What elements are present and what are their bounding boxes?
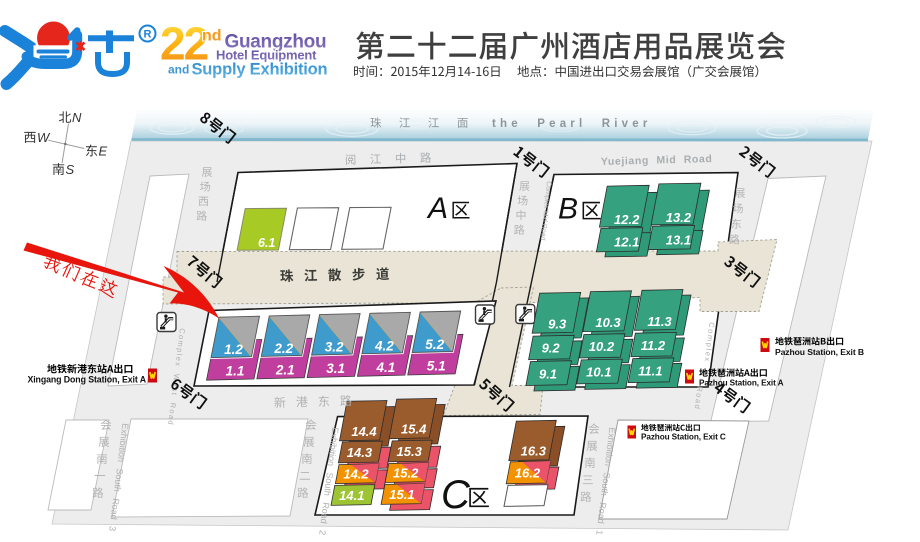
svg-text:2.1: 2.1 bbox=[275, 362, 295, 377]
svg-text:and: and bbox=[168, 63, 189, 77]
svg-text:E: E bbox=[99, 144, 108, 159]
svg-text:S: S bbox=[66, 162, 75, 177]
svg-text:14.2: 14.2 bbox=[343, 467, 369, 482]
svg-text:10.3: 10.3 bbox=[595, 315, 621, 330]
svg-text:Supply Exhibition: Supply Exhibition bbox=[192, 61, 328, 79]
svg-text:13.2: 13.2 bbox=[666, 210, 692, 225]
svg-text:15.4: 15.4 bbox=[401, 422, 427, 437]
svg-text:12.2: 12.2 bbox=[614, 212, 640, 227]
svg-text:14.4: 14.4 bbox=[351, 424, 377, 439]
svg-text:15.2: 15.2 bbox=[393, 466, 419, 481]
svg-text:10.1: 10.1 bbox=[586, 365, 611, 380]
svg-text:16.3: 16.3 bbox=[521, 444, 547, 459]
svg-text:11.2: 11.2 bbox=[641, 338, 666, 353]
svg-text:15.3: 15.3 bbox=[397, 444, 423, 459]
svg-text:Pazhou Station, Exit C: Pazhou Station, Exit C bbox=[641, 433, 726, 442]
svg-text:B: B bbox=[558, 193, 578, 226]
svg-text:10.2: 10.2 bbox=[589, 339, 615, 354]
svg-text:13.1: 13.1 bbox=[666, 232, 691, 247]
svg-text:3.2: 3.2 bbox=[325, 340, 344, 355]
svg-text:Pazhou Station, Exit B: Pazhou Station, Exit B bbox=[775, 347, 864, 357]
svg-text:3.1: 3.1 bbox=[326, 361, 345, 376]
svg-text:4.2: 4.2 bbox=[374, 338, 394, 353]
svg-text:N: N bbox=[72, 110, 82, 125]
svg-text:5.2: 5.2 bbox=[425, 337, 444, 352]
svg-text:the Pearl River: the Pearl River bbox=[492, 118, 652, 130]
svg-text:Xingang Dong Station, Exit A: Xingang Dong Station, Exit A bbox=[27, 375, 146, 385]
svg-text:2.2: 2.2 bbox=[273, 341, 293, 356]
svg-text:1.2: 1.2 bbox=[224, 342, 243, 357]
svg-text:16.2: 16.2 bbox=[515, 465, 541, 480]
svg-text:5.1: 5.1 bbox=[427, 359, 446, 374]
svg-text:6.1: 6.1 bbox=[258, 236, 275, 250]
svg-text:A: A bbox=[426, 192, 448, 225]
svg-text:9.2: 9.2 bbox=[542, 341, 561, 356]
svg-text:4.1: 4.1 bbox=[376, 360, 396, 375]
svg-text:Pazhou Station, Exit A: Pazhou Station, Exit A bbox=[699, 379, 784, 388]
svg-text:W: W bbox=[37, 130, 51, 145]
svg-text:C: C bbox=[441, 473, 471, 517]
svg-text:R: R bbox=[144, 29, 152, 41]
svg-text:15.1: 15.1 bbox=[389, 487, 414, 502]
svg-text:nd: nd bbox=[202, 28, 222, 45]
svg-text:14.3: 14.3 bbox=[347, 445, 373, 460]
svg-text:9.3: 9.3 bbox=[548, 317, 567, 332]
svg-text:1.1: 1.1 bbox=[226, 364, 245, 379]
svg-text:9.1: 9.1 bbox=[539, 366, 557, 381]
svg-text:11.3: 11.3 bbox=[647, 314, 672, 329]
svg-text:11.1: 11.1 bbox=[638, 363, 662, 378]
svg-text:14.1: 14.1 bbox=[339, 488, 364, 503]
svg-text:12.1: 12.1 bbox=[614, 235, 639, 250]
